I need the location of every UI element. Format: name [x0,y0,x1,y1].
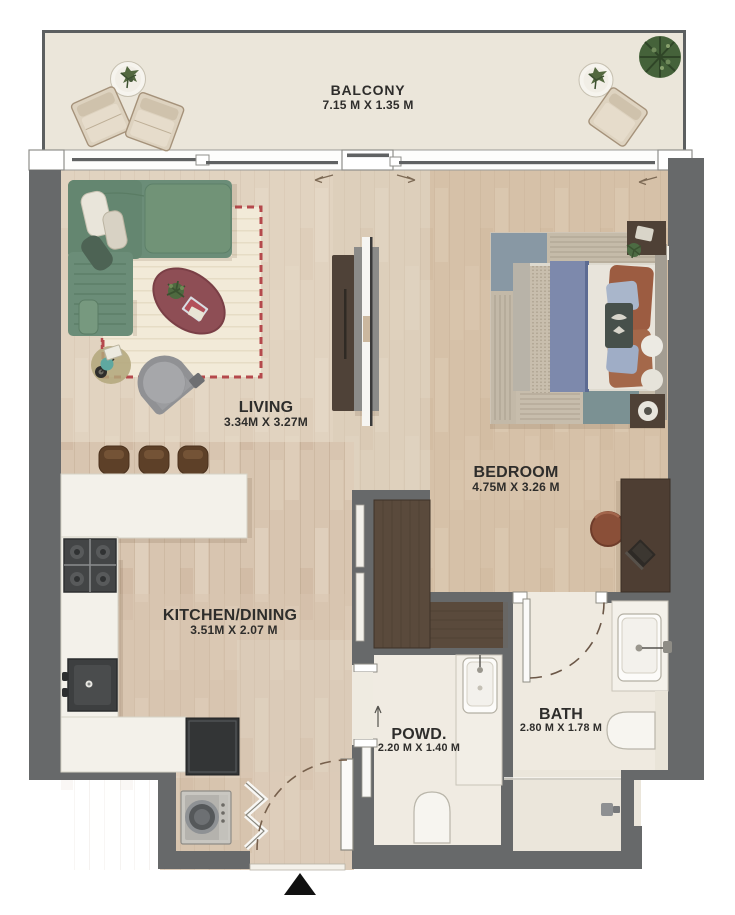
svg-text:7.15 M X 1.35 M: 7.15 M X 1.35 M [322,98,413,112]
svg-text:2.80 M X 1.78 M: 2.80 M X 1.78 M [520,722,602,734]
svg-text:BATH: BATH [539,706,583,723]
svg-text:BALCONY: BALCONY [331,82,406,98]
svg-text:2.20 M X 1.40 M: 2.20 M X 1.40 M [378,742,460,754]
svg-text:POWD.: POWD. [391,726,446,743]
svg-text:4.75M X 3.26 M: 4.75M X 3.26 M [472,480,560,494]
svg-text:KITCHEN/DINING: KITCHEN/DINING [163,607,297,624]
svg-text:LIVING: LIVING [239,399,294,416]
svg-text:3.51M X 2.07 M: 3.51M X 2.07 M [190,623,278,637]
svg-text:BEDROOM: BEDROOM [474,464,559,481]
svg-text:3.34M X 3.27M: 3.34M X 3.27M [224,415,308,429]
